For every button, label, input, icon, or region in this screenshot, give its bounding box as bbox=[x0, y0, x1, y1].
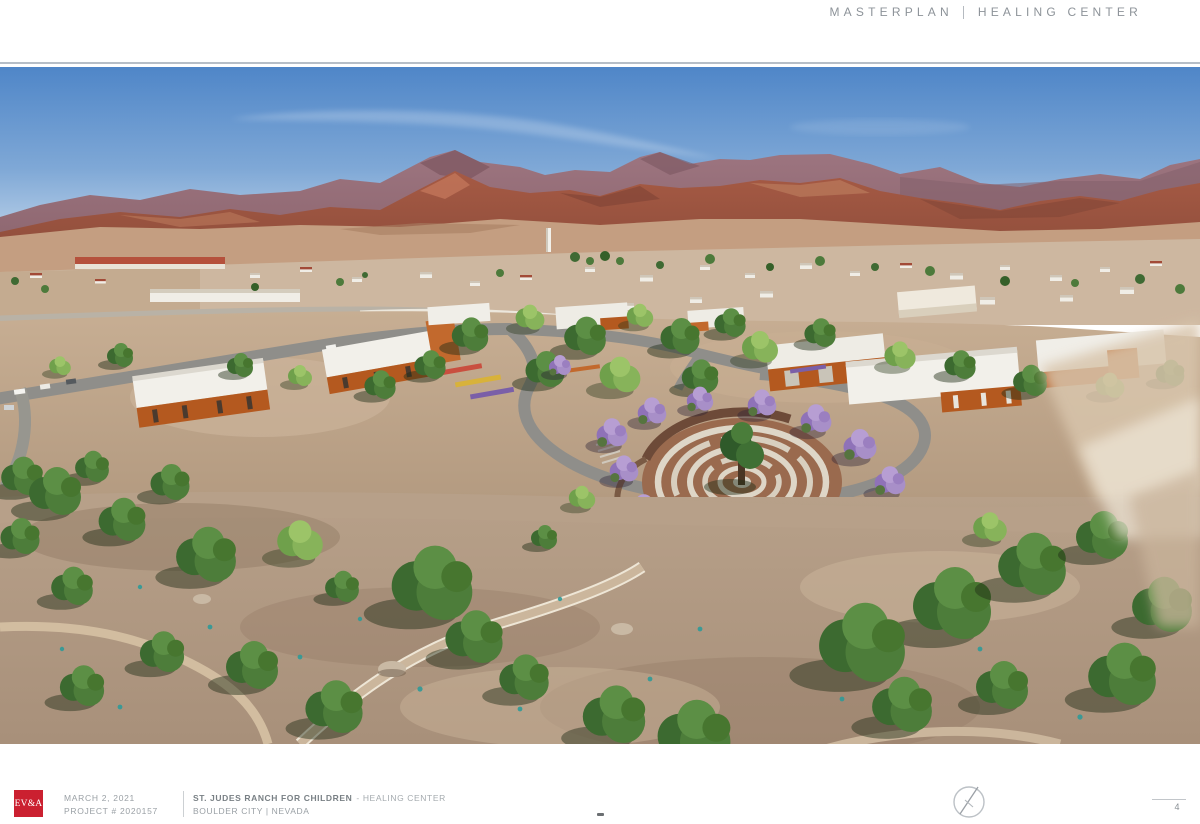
presentation-sheet: MASTERPLAN HEALING CENTER bbox=[0, 0, 1200, 824]
rendering-canvas bbox=[0, 67, 1200, 744]
project-name: - HEALING CENTER bbox=[356, 793, 445, 803]
header-section-label: MASTERPLAN bbox=[829, 5, 952, 19]
sheet-date: MARCH 2, 2021 bbox=[64, 792, 158, 805]
masterplan-rendering bbox=[0, 67, 1200, 744]
project-location: BOULDER CITY | NEVADA bbox=[193, 805, 446, 818]
sheet-header: MASTERPLAN HEALING CENTER bbox=[829, 5, 1142, 19]
header-divider bbox=[963, 6, 964, 19]
header-project-label: HEALING CENTER bbox=[978, 5, 1142, 19]
header-rule bbox=[0, 62, 1200, 64]
client-name: ST. JUDES RANCH FOR CHILDREN bbox=[193, 793, 352, 803]
project-number: PROJECT # 2020157 bbox=[64, 805, 158, 818]
page-number-rule bbox=[1152, 799, 1186, 800]
page-number: 4 bbox=[1166, 802, 1188, 812]
firm-logo: EV&A bbox=[14, 790, 43, 817]
date-project-block: MARCH 2, 2021 PROJECT # 2020157 bbox=[64, 792, 158, 818]
north-arrow-icon bbox=[950, 783, 988, 821]
project-title-block: ST. JUDES RANCH FOR CHILDREN- HEALING CE… bbox=[193, 792, 446, 818]
titleblock-divider bbox=[183, 791, 184, 817]
registration-mark bbox=[597, 813, 604, 816]
